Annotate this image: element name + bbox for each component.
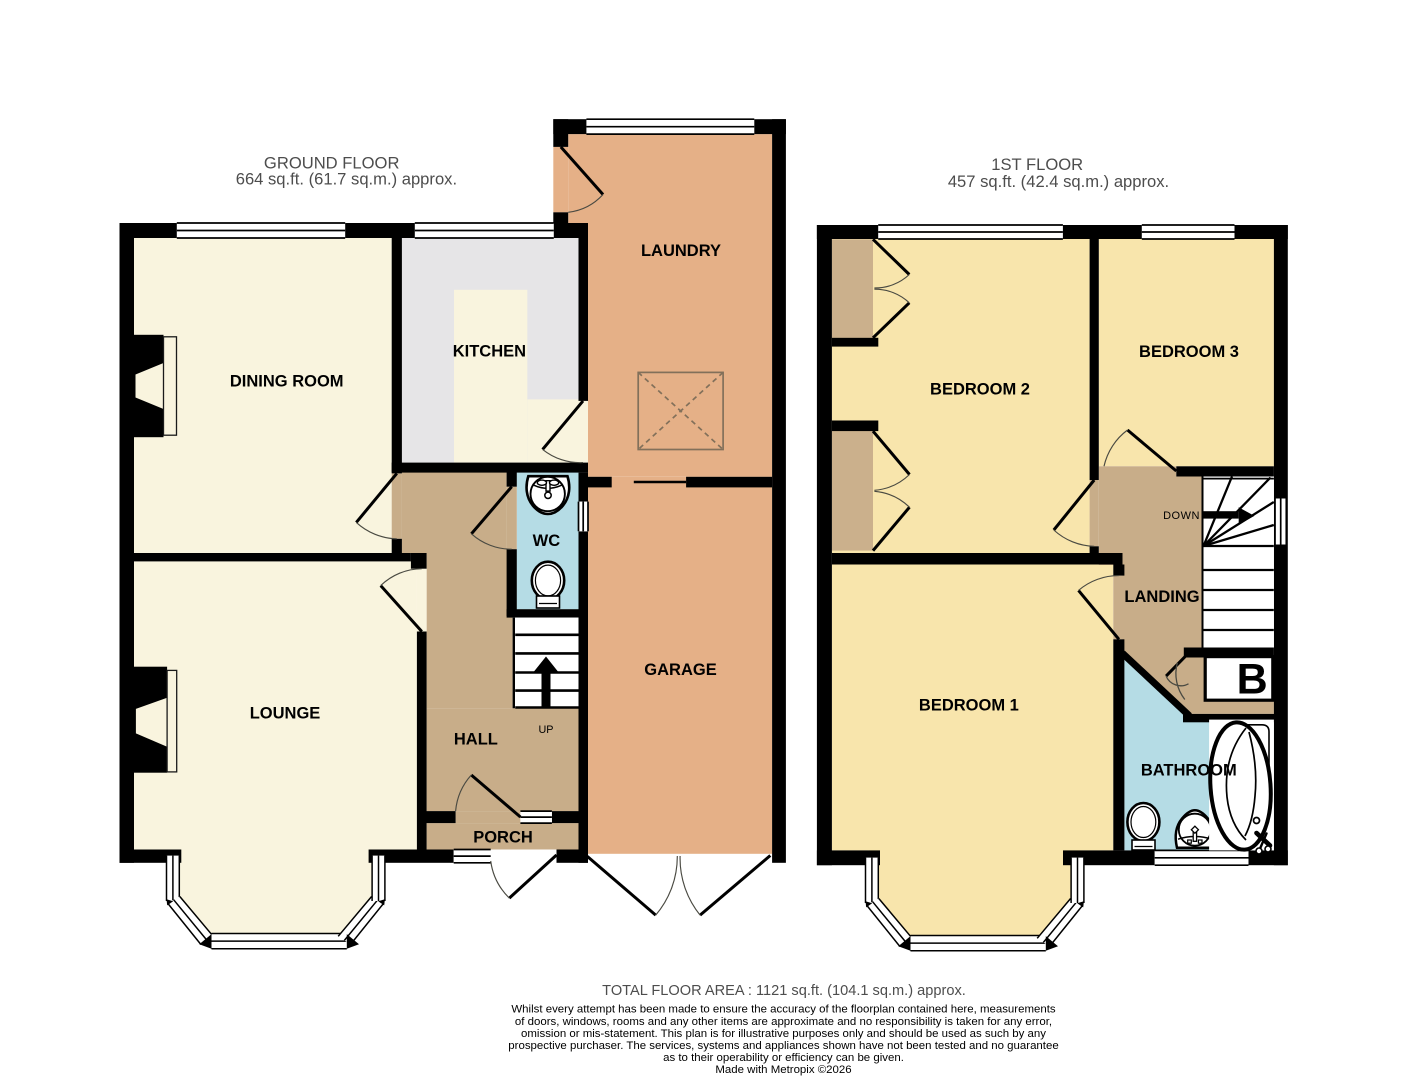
svg-text:BEDROOM 3: BEDROOM 3 [1139, 343, 1239, 361]
svg-text:GARAGE: GARAGE [644, 661, 716, 679]
svg-text:prospective purchaser. The ser: prospective purchaser. The services, sys… [508, 1040, 1058, 1052]
svg-text:Whilst every attempt has been: Whilst every attempt has been made to en… [511, 1004, 1055, 1016]
svg-text:LANDING: LANDING [1124, 588, 1199, 606]
svg-text:HALL: HALL [454, 731, 498, 749]
svg-text:B: B [1237, 655, 1268, 703]
svg-text:UP: UP [539, 724, 554, 736]
svg-text:of doors, windows, rooms and a: of doors, windows, rooms and any other i… [515, 1016, 1052, 1028]
svg-text:WC: WC [533, 532, 561, 550]
svg-text:BEDROOM 1: BEDROOM 1 [919, 697, 1019, 715]
svg-text:LOUNGE: LOUNGE [250, 705, 321, 723]
svg-text:DINING ROOM: DINING ROOM [230, 373, 344, 391]
svg-text:TOTAL FLOOR AREA : 1121 sq.ft.: TOTAL FLOOR AREA : 1121 sq.ft. (104.1 sq… [602, 983, 966, 999]
svg-text:as to their operability or eff: as to their operability or efficiency ca… [663, 1052, 904, 1064]
svg-text:BATHROOM: BATHROOM [1141, 762, 1237, 780]
svg-text:Made with Metropix ©2026: Made with Metropix ©2026 [715, 1064, 851, 1076]
svg-text:omission or mis-statement. Thi: omission or mis-statement. This plan is … [521, 1028, 1046, 1040]
svg-text:457 sq.ft. (42.4 sq.m.) approx: 457 sq.ft. (42.4 sq.m.) approx. [948, 172, 1169, 191]
svg-text:PORCH: PORCH [473, 829, 533, 847]
svg-text:DOWN: DOWN [1163, 510, 1200, 522]
svg-text:LAUNDRY: LAUNDRY [641, 242, 721, 260]
svg-text:BEDROOM 2: BEDROOM 2 [930, 381, 1030, 399]
svg-text:664 sq.ft. (61.7 sq.m.) approx: 664 sq.ft. (61.7 sq.m.) approx. [236, 169, 457, 188]
svg-text:KITCHEN: KITCHEN [453, 342, 526, 360]
